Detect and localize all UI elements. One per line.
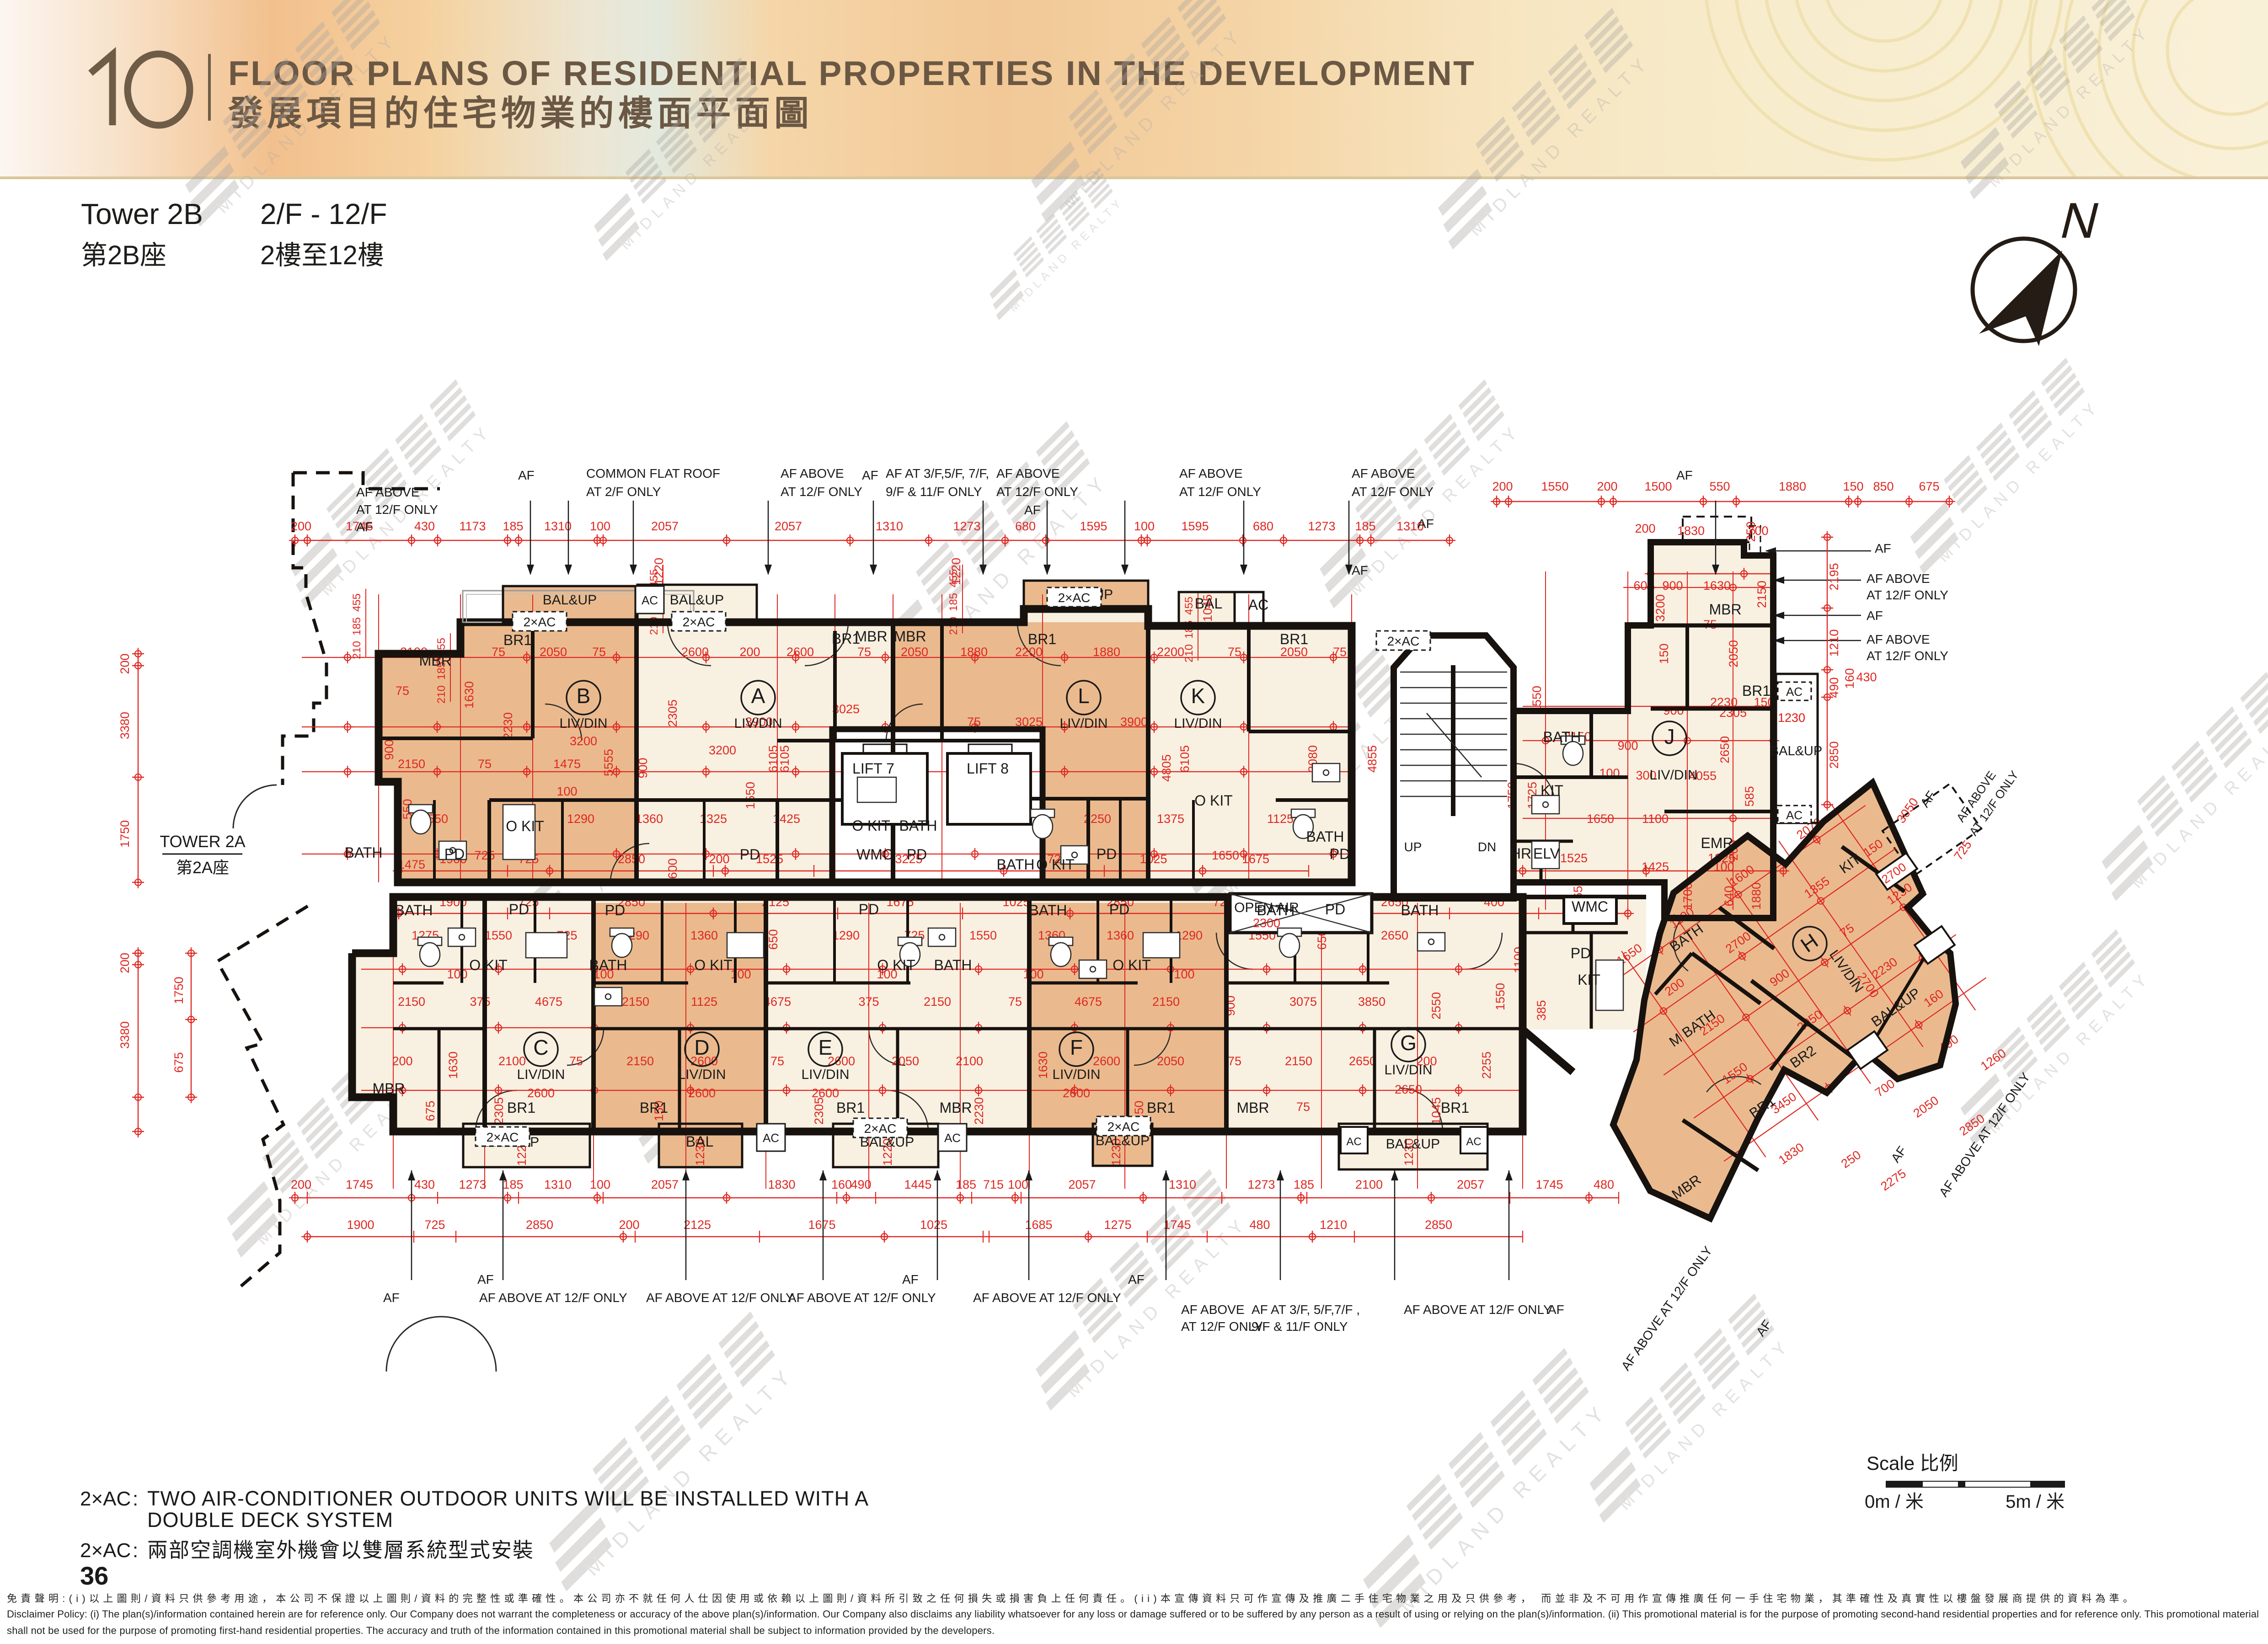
- svg-text:1880: 1880: [1749, 882, 1763, 910]
- svg-text:AF AT 3/F, 5/F,7/F ,: AF AT 3/F, 5/F,7/F ,: [1252, 1302, 1360, 1317]
- svg-text:75: 75: [396, 684, 409, 698]
- svg-text:2×AC: 2×AC: [80, 1539, 131, 1562]
- svg-text:AF: AF: [383, 1291, 400, 1305]
- svg-text:250: 250: [1744, 521, 1758, 542]
- svg-text:LIV/DIN: LIV/DIN: [734, 716, 782, 731]
- svg-text:1550: 1550: [969, 929, 997, 942]
- svg-text:75: 75: [1008, 995, 1022, 1009]
- svg-text:O KIT: O KIT: [469, 957, 508, 973]
- svg-text:2150: 2150: [398, 757, 425, 771]
- svg-text:Disclaimer Policy: (i) The pla: Disclaimer Policy: (i) The plan(s)/infor…: [7, 1608, 2259, 1620]
- svg-text:1675: 1675: [808, 1218, 835, 1232]
- svg-text:AT 12/F ONLY: AT 12/F ONLY: [781, 485, 862, 499]
- svg-text:1173: 1173: [459, 519, 486, 533]
- svg-text:BATH: BATH: [1401, 902, 1439, 918]
- svg-text:2050: 2050: [892, 1054, 919, 1068]
- svg-text:AC: AC: [1346, 1136, 1361, 1148]
- svg-text:BAL&UP: BAL&UP: [543, 592, 597, 608]
- svg-text:1745: 1745: [1535, 1178, 1563, 1191]
- svg-text:725: 725: [424, 1218, 445, 1232]
- svg-text:AF ABOVE AT 12/F ONLY: AF ABOVE AT 12/F ONLY: [479, 1291, 627, 1305]
- svg-text:725: 725: [474, 849, 495, 862]
- svg-text:100: 100: [1174, 967, 1194, 981]
- svg-text:200: 200: [1635, 522, 1655, 535]
- svg-text:1880: 1880: [960, 645, 988, 659]
- svg-text:BAL: BAL: [1195, 595, 1222, 612]
- svg-text:1425: 1425: [1642, 860, 1669, 874]
- svg-text:1220: 1220: [949, 558, 963, 585]
- svg-text:2600: 2600: [681, 645, 709, 659]
- svg-text:200: 200: [739, 645, 760, 659]
- svg-text:LIV/DIN: LIV/DIN: [1174, 716, 1222, 731]
- svg-text:2150: 2150: [622, 995, 649, 1009]
- svg-text:1375: 1375: [1157, 812, 1184, 826]
- svg-text:AT 12/F ONLY: AT 12/F ONLY: [1179, 485, 1261, 499]
- svg-text:675: 675: [172, 1052, 186, 1073]
- svg-text:6105: 6105: [778, 745, 792, 773]
- svg-text:UP: UP: [1404, 840, 1422, 854]
- svg-text:9/F & 11/F ONLY: 9/F & 11/F ONLY: [1252, 1319, 1348, 1334]
- svg-text:1310: 1310: [544, 1178, 572, 1191]
- svg-text:75: 75: [770, 1054, 784, 1068]
- svg-text:650: 650: [766, 929, 780, 950]
- svg-text:2×AC: 2×AC: [1387, 634, 1420, 648]
- svg-text:2100: 2100: [956, 1054, 983, 1068]
- svg-text:AF ABOVE AT 12/F ONLY: AF ABOVE AT 12/F ONLY: [973, 1291, 1121, 1305]
- svg-text:100: 100: [1008, 1178, 1028, 1191]
- svg-text:shall not be used for the purp: shall not be used for the purpose of pro…: [7, 1625, 995, 1636]
- svg-text:D: D: [694, 1036, 709, 1059]
- svg-text:1880: 1880: [1093, 645, 1120, 659]
- svg-text:LIV/DIN: LIV/DIN: [1649, 768, 1697, 783]
- svg-text:100: 100: [447, 967, 467, 981]
- svg-text:PD: PD: [1097, 846, 1117, 862]
- svg-text:385: 385: [1535, 1000, 1548, 1020]
- svg-text:200: 200: [392, 1054, 412, 1068]
- svg-text:MBR: MBR: [1236, 1100, 1269, 1116]
- svg-text:2230: 2230: [501, 712, 515, 740]
- svg-text:AF ABOVE: AF ABOVE: [1352, 466, 1415, 480]
- svg-text:KIT: KIT: [1578, 971, 1600, 988]
- svg-text:100: 100: [1023, 967, 1043, 981]
- svg-text:2600: 2600: [786, 645, 814, 659]
- svg-text:AT 12/F ONLY: AT 12/F ONLY: [1352, 485, 1434, 499]
- svg-text:1100: 1100: [1642, 812, 1669, 826]
- svg-text:第2A座: 第2A座: [176, 858, 229, 877]
- svg-text:Tower 2B: Tower 2B: [81, 197, 203, 230]
- svg-text:TWO AIR-CONDITIONER OUTDOOR UN: TWO AIR-CONDITIONER OUTDOOR UNITS WILL B…: [147, 1487, 869, 1510]
- svg-text:2050: 2050: [1727, 640, 1740, 667]
- svg-text:680: 680: [1253, 519, 1273, 533]
- svg-text:200: 200: [118, 953, 132, 973]
- svg-text:DN: DN: [1478, 840, 1496, 854]
- svg-text:BR1: BR1: [507, 1100, 535, 1116]
- svg-text:PD: PD: [859, 901, 879, 918]
- svg-text:2樓至12樓: 2樓至12樓: [260, 240, 384, 270]
- svg-text:1290: 1290: [832, 929, 860, 942]
- svg-text:BATH: BATH: [1029, 902, 1067, 918]
- svg-text:680: 680: [1015, 519, 1036, 533]
- svg-text:1650: 1650: [1212, 849, 1239, 862]
- svg-text:A: A: [751, 684, 765, 708]
- svg-text:2150: 2150: [924, 995, 951, 1009]
- svg-text:BAL&UP: BAL&UP: [1770, 744, 1822, 758]
- svg-text:AC: AC: [1786, 685, 1803, 699]
- svg-text:MBR: MBR: [419, 652, 451, 669]
- svg-text:BR1: BR1: [1147, 1100, 1175, 1116]
- svg-text:BATH: BATH: [1306, 828, 1344, 845]
- svg-text:1290: 1290: [567, 812, 594, 826]
- svg-text:1595: 1595: [1080, 519, 1107, 533]
- svg-text:100: 100: [590, 1178, 610, 1191]
- svg-text:1630: 1630: [446, 1052, 460, 1079]
- svg-text:兩部空調機室外機會以雙層系統型式安裝: 兩部空調機室外機會以雙層系統型式安裝: [147, 1538, 534, 1562]
- svg-text:K: K: [1191, 684, 1205, 708]
- svg-text:1025: 1025: [920, 1218, 947, 1232]
- svg-text:1550: 1550: [744, 782, 757, 809]
- svg-text:BR1: BR1: [503, 632, 532, 648]
- svg-text:2100: 2100: [1355, 1178, 1383, 1191]
- svg-text:1630: 1630: [1036, 1052, 1050, 1079]
- svg-text:2550: 2550: [1429, 992, 1443, 1019]
- svg-text:PD: PD: [509, 901, 529, 918]
- svg-text:1360: 1360: [636, 812, 663, 826]
- svg-text:2150: 2150: [1285, 1054, 1312, 1068]
- svg-text:AF: AF: [862, 468, 878, 482]
- svg-text:100: 100: [730, 967, 751, 981]
- svg-text:AF AT 3/F,5/F, 7/F,: AF AT 3/F,5/F, 7/F,: [886, 466, 989, 480]
- svg-text:BATH: BATH: [997, 856, 1035, 873]
- svg-text:0m / 米: 0m / 米: [1865, 1492, 1924, 1512]
- svg-text:第2B座: 第2B座: [81, 240, 166, 270]
- svg-text:免責聲明:(i)以上圖則/資料只供參考用途，本公司不保證以上: 免責聲明:(i)以上圖則/資料只供參考用途，本公司不保證以上圖則/資料的完整性或…: [7, 1593, 2133, 1604]
- svg-text:160: 160: [1843, 668, 1856, 689]
- svg-text:75: 75: [569, 1054, 583, 1068]
- svg-text:AF ABOVE AT 12/F ONLY: AF ABOVE AT 12/F ONLY: [788, 1291, 936, 1305]
- svg-text:AF: AF: [1676, 468, 1693, 482]
- svg-text:75: 75: [1228, 1054, 1241, 1068]
- svg-text:2050: 2050: [901, 645, 928, 659]
- svg-text:L: L: [1078, 684, 1090, 708]
- svg-text:900: 900: [382, 739, 396, 760]
- svg-text:900: 900: [1617, 739, 1638, 753]
- svg-text:KIT: KIT: [1541, 782, 1563, 799]
- svg-text:AC: AC: [642, 593, 658, 607]
- svg-text:2×AC: 2×AC: [524, 615, 556, 629]
- svg-text:PD: PD: [605, 902, 625, 918]
- svg-text:AF: AF: [902, 1272, 919, 1286]
- svg-text:2850: 2850: [1425, 1218, 1452, 1232]
- svg-text:2200: 2200: [1157, 645, 1184, 659]
- svg-text:185: 185: [1355, 519, 1375, 533]
- svg-text:C: C: [533, 1036, 548, 1059]
- svg-text:O KIT: O KIT: [1113, 957, 1151, 973]
- svg-text:AT 12/F ONLY: AT 12/F ONLY: [1181, 1319, 1263, 1334]
- svg-text:LIV/DIN: LIV/DIN: [517, 1067, 565, 1082]
- svg-text::: :: [133, 1539, 138, 1562]
- svg-text:375: 375: [858, 995, 879, 1009]
- svg-text:2230: 2230: [972, 1097, 986, 1125]
- svg-text:AT 12/F ONLY: AT 12/F ONLY: [1867, 649, 1948, 663]
- svg-text:4805: 4805: [1160, 754, 1173, 782]
- svg-text:AF: AF: [1875, 541, 1891, 555]
- svg-text:2125: 2125: [684, 1218, 711, 1232]
- svg-text:2100: 2100: [498, 1054, 526, 1068]
- svg-text:75: 75: [1228, 645, 1241, 659]
- svg-text:AF ABOVE: AF ABOVE: [781, 466, 844, 480]
- svg-text:4675: 4675: [535, 995, 562, 1009]
- svg-text:185: 185: [503, 519, 523, 533]
- svg-text:2×AC: 2×AC: [1107, 1120, 1140, 1134]
- svg-text:WMC: WMC: [856, 846, 893, 863]
- svg-text:210: 210: [435, 685, 448, 704]
- svg-text:BR1: BR1: [640, 1100, 668, 1116]
- svg-text:MBR: MBR: [855, 628, 887, 645]
- svg-text:2600: 2600: [1063, 1086, 1090, 1100]
- svg-text:BR1: BR1: [1742, 683, 1771, 699]
- svg-text:LIV/DIN: LIV/DIN: [1052, 1067, 1100, 1082]
- svg-text:2305: 2305: [812, 1097, 826, 1125]
- svg-text:1595: 1595: [1181, 519, 1209, 533]
- svg-text:1360: 1360: [690, 929, 718, 942]
- svg-text:LIFT 8: LIFT 8: [967, 760, 1009, 777]
- svg-text:2600: 2600: [812, 1086, 839, 1100]
- svg-text:1230: 1230: [1778, 711, 1805, 725]
- svg-text:2650: 2650: [1349, 1054, 1376, 1068]
- svg-text:2057: 2057: [1457, 1178, 1484, 1191]
- svg-text:AF ABOVE: AF ABOVE: [1181, 1302, 1245, 1317]
- svg-text:LIV/DIN: LIV/DIN: [801, 1067, 849, 1082]
- svg-text:1550: 1550: [1541, 480, 1568, 493]
- svg-text:AC: AC: [1466, 1136, 1481, 1148]
- svg-text:480: 480: [1594, 1178, 1614, 1191]
- svg-text:2650: 2650: [1718, 736, 1732, 763]
- svg-text:455: 455: [351, 593, 363, 612]
- svg-text:1750: 1750: [118, 820, 132, 848]
- svg-text:AF: AF: [1352, 563, 1368, 577]
- svg-text:O KIT: O KIT: [506, 818, 544, 834]
- svg-text:2850: 2850: [1827, 741, 1841, 769]
- svg-text:900: 900: [1662, 579, 1683, 592]
- svg-text:2057: 2057: [1068, 1178, 1096, 1191]
- svg-text:3380: 3380: [118, 1021, 132, 1049]
- svg-text:2/F - 12/F: 2/F - 12/F: [260, 197, 387, 230]
- svg-text:AF: AF: [518, 468, 535, 482]
- svg-text:BR1: BR1: [1280, 631, 1308, 647]
- svg-text:AF ABOVE AT 12/F ONLY: AF ABOVE AT 12/F ONLY: [646, 1291, 794, 1305]
- svg-text:200: 200: [118, 653, 132, 674]
- svg-text:1273: 1273: [1247, 1178, 1275, 1191]
- svg-text:100: 100: [556, 785, 577, 798]
- svg-text:2×AC: 2×AC: [864, 1121, 897, 1136]
- svg-text::: :: [133, 1488, 138, 1510]
- svg-text:AF: AF: [1024, 503, 1041, 517]
- svg-text:4855: 4855: [1365, 745, 1379, 773]
- svg-text:PD: PD: [740, 846, 760, 863]
- svg-text:BAL: BAL: [686, 1133, 713, 1150]
- svg-text:MBR: MBR: [893, 628, 926, 645]
- svg-text:2600: 2600: [527, 1086, 555, 1100]
- svg-text:DOUBLE DECK SYSTEM: DOUBLE DECK SYSTEM: [147, 1508, 393, 1532]
- svg-text:1310: 1310: [544, 519, 572, 533]
- svg-text:2057: 2057: [651, 519, 679, 533]
- svg-text:185: 185: [947, 593, 960, 611]
- svg-text:LIV/DIN: LIV/DIN: [678, 1067, 726, 1082]
- svg-text:WMC: WMC: [1572, 898, 1608, 915]
- svg-text:36: 36: [80, 1561, 108, 1590]
- svg-text:2057: 2057: [775, 519, 802, 533]
- svg-text:MBR: MBR: [939, 1100, 972, 1116]
- svg-text:75: 75: [1333, 645, 1347, 659]
- svg-text:AF: AF: [356, 520, 373, 534]
- svg-text:F: F: [1070, 1036, 1083, 1059]
- svg-text:BATH: BATH: [395, 902, 433, 918]
- svg-text:BAL&UP: BAL&UP: [670, 592, 724, 608]
- svg-text:2150: 2150: [1755, 581, 1769, 608]
- svg-text:430: 430: [1856, 670, 1877, 684]
- svg-text:2600: 2600: [688, 1086, 716, 1100]
- svg-text:5555: 5555: [602, 749, 615, 776]
- svg-text:2300: 2300: [1253, 916, 1280, 930]
- svg-text:AT 12/F ONLY: AT 12/F ONLY: [356, 502, 438, 517]
- svg-text:5m / 米: 5m / 米: [2006, 1492, 2065, 1512]
- svg-text:AF: AF: [1128, 1272, 1145, 1286]
- svg-text:75: 75: [478, 757, 492, 771]
- svg-text:100: 100: [1134, 519, 1155, 533]
- svg-text:O KIT: O KIT: [1036, 856, 1075, 873]
- svg-text:PD: PD: [1330, 846, 1350, 862]
- svg-text:1745: 1745: [1163, 1218, 1191, 1232]
- svg-text:2850: 2850: [526, 1218, 553, 1232]
- svg-text:1273: 1273: [1308, 519, 1335, 533]
- svg-text:1125: 1125: [691, 995, 717, 1009]
- svg-text:640: 640: [1722, 886, 1736, 906]
- svg-text:AT 2/F ONLY: AT 2/F ONLY: [586, 485, 661, 499]
- svg-text:ELV: ELV: [1533, 845, 1560, 862]
- svg-text:550: 550: [1709, 480, 1730, 493]
- svg-text:AF ABOVE: AF ABOVE: [1867, 632, 1930, 646]
- svg-text:1630: 1630: [462, 681, 476, 709]
- svg-text:TOWER 2A: TOWER 2A: [160, 832, 245, 851]
- svg-text:AC: AC: [763, 1131, 779, 1145]
- svg-text:2650: 2650: [1381, 929, 1408, 942]
- svg-text:2×AC: 2×AC: [1058, 591, 1091, 605]
- svg-text:1475: 1475: [398, 858, 425, 871]
- svg-text:2650: 2650: [1395, 1083, 1422, 1096]
- svg-text:AF ABOVE: AF ABOVE: [356, 485, 420, 499]
- svg-text:1500: 1500: [1644, 480, 1672, 493]
- svg-text:1360: 1360: [1107, 929, 1134, 942]
- svg-text:BATH: BATH: [934, 957, 972, 973]
- svg-text:BR1: BR1: [1441, 1100, 1469, 1116]
- svg-text:BR1: BR1: [836, 1100, 865, 1116]
- svg-text:6105: 6105: [1178, 745, 1192, 773]
- svg-text:1550: 1550: [1493, 983, 1507, 1010]
- svg-text:2050: 2050: [540, 645, 567, 659]
- svg-text:150: 150: [1657, 643, 1671, 664]
- svg-text:3075: 3075: [1289, 995, 1317, 1009]
- svg-text:490: 490: [850, 1178, 871, 1191]
- svg-text:1650: 1650: [1587, 812, 1614, 826]
- svg-text:PD: PD: [1325, 901, 1345, 918]
- svg-text:HR: HR: [1510, 845, 1531, 862]
- svg-text:715: 715: [983, 1178, 1004, 1191]
- svg-text:200: 200: [291, 1178, 311, 1191]
- svg-text:2600: 2600: [1093, 1054, 1120, 1068]
- svg-text:200: 200: [1597, 480, 1617, 493]
- svg-text:480: 480: [1249, 1218, 1270, 1232]
- svg-text:3200: 3200: [1653, 594, 1667, 622]
- svg-text:LIV/DIN: LIV/DIN: [1384, 1062, 1432, 1078]
- svg-text:AC: AC: [944, 1131, 961, 1145]
- svg-text:490: 490: [1827, 677, 1841, 698]
- svg-text:1310: 1310: [1169, 1178, 1196, 1191]
- svg-text:430: 430: [414, 1178, 435, 1191]
- svg-text:EMR: EMR: [1701, 835, 1733, 851]
- svg-text:1750: 1750: [172, 977, 186, 1004]
- svg-text:AF: AF: [1548, 1302, 1564, 1317]
- svg-text:B: B: [577, 684, 591, 708]
- svg-text:200: 200: [291, 519, 311, 533]
- svg-text:3850: 3850: [1358, 995, 1385, 1009]
- svg-text:AF ABOVE AT 12/F ONLY: AF ABOVE AT 12/F ONLY: [1404, 1302, 1552, 1317]
- svg-text:430: 430: [414, 519, 435, 533]
- svg-text:3380: 3380: [118, 712, 132, 739]
- svg-text:100: 100: [590, 519, 610, 533]
- svg-text:MBR: MBR: [1709, 601, 1741, 618]
- svg-text:160: 160: [831, 1178, 852, 1191]
- svg-text:1445: 1445: [904, 1178, 931, 1191]
- svg-text:2057: 2057: [651, 1178, 679, 1191]
- svg-text:675: 675: [423, 1100, 437, 1121]
- svg-text:210: 210: [351, 641, 363, 659]
- svg-text:185: 185: [1294, 1178, 1314, 1191]
- svg-text:2150: 2150: [1152, 995, 1180, 1009]
- svg-text:185: 185: [351, 617, 363, 635]
- svg-text:585: 585: [1743, 786, 1756, 806]
- svg-text:BATH: BATH: [1543, 729, 1581, 745]
- svg-text:AF ABOVE: AF ABOVE: [996, 466, 1060, 480]
- svg-text:1830: 1830: [1677, 524, 1705, 538]
- svg-text:Scale 比例: Scale 比例: [1867, 1452, 1958, 1474]
- svg-text:4675: 4675: [1075, 995, 1102, 1009]
- svg-text:FLOOR PLANS OF RESIDENTIAL PRO: FLOOR PLANS OF RESIDENTIAL PROPERTIES IN…: [228, 54, 1474, 92]
- svg-text:PD: PD: [907, 846, 927, 863]
- svg-text:O KIT: O KIT: [1194, 792, 1233, 809]
- svg-text:200: 200: [1492, 480, 1513, 493]
- svg-text:1273: 1273: [459, 1178, 486, 1191]
- svg-text:1310: 1310: [876, 519, 903, 533]
- svg-text:675: 675: [1919, 480, 1939, 493]
- svg-text:600: 600: [666, 858, 679, 879]
- svg-text:AT 12/F ONLY: AT 12/F ONLY: [1867, 588, 1948, 602]
- svg-text:PD: PD: [444, 846, 465, 862]
- svg-text:850: 850: [1873, 480, 1894, 493]
- svg-text:3200: 3200: [709, 743, 736, 757]
- svg-text:AF ABOVE: AF ABOVE: [1179, 466, 1243, 480]
- svg-text:2×AC: 2×AC: [80, 1488, 131, 1510]
- svg-text:AC: AC: [1786, 808, 1803, 822]
- svg-text:E: E: [818, 1036, 833, 1059]
- svg-text:9/F & 11/F ONLY: 9/F & 11/F ONLY: [886, 485, 982, 499]
- svg-text:O KIT: O KIT: [877, 957, 915, 973]
- svg-text:455: 455: [1183, 597, 1195, 615]
- svg-text:2150: 2150: [626, 1054, 654, 1068]
- svg-text:2150: 2150: [398, 995, 425, 1009]
- svg-text:O KIT: O KIT: [852, 817, 890, 834]
- svg-text:2×AC: 2×AC: [487, 1130, 519, 1144]
- svg-text:O KIT: O KIT: [694, 957, 733, 973]
